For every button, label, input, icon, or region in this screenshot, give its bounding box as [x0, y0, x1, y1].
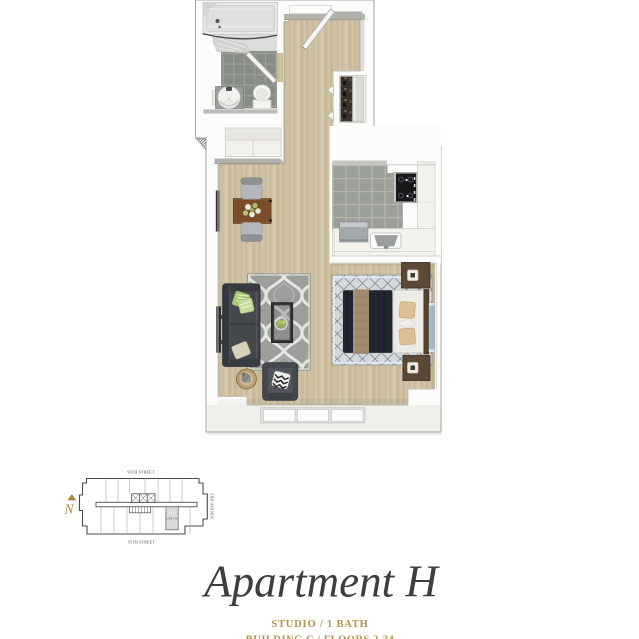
svg-text:BUILDING C / FLOORS 2-34: BUILDING C / FLOORS 2-34 [246, 635, 395, 639]
svg-text:Apartment H: Apartment H [201, 557, 440, 607]
svg-text:N: N [64, 502, 75, 517]
svg-text:STUDIO / 1 BATH: STUDIO / 1 BATH [271, 619, 368, 630]
svg-text:UNIT H: UNIT H [166, 517, 178, 521]
svg-text:2ND AVENUE: 2ND AVENUE [209, 493, 214, 520]
svg-text:95TH STREET: 95TH STREET [128, 540, 156, 545]
svg-text:96TH STREET: 96TH STREET [127, 470, 155, 475]
